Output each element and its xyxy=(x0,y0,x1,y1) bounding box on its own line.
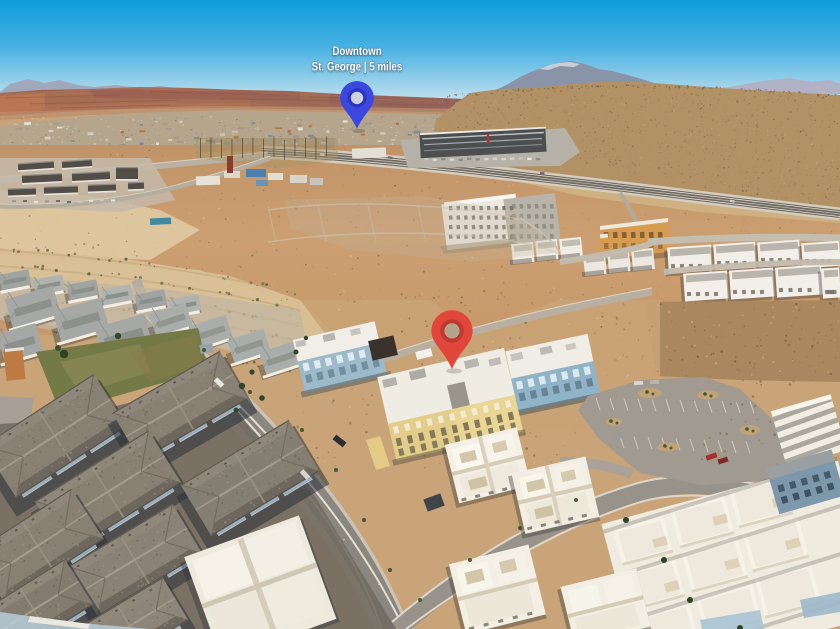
svg-text:St. George | 5 miles: St. George | 5 miles xyxy=(312,61,403,74)
svg-text:Downtown: Downtown xyxy=(332,45,381,58)
